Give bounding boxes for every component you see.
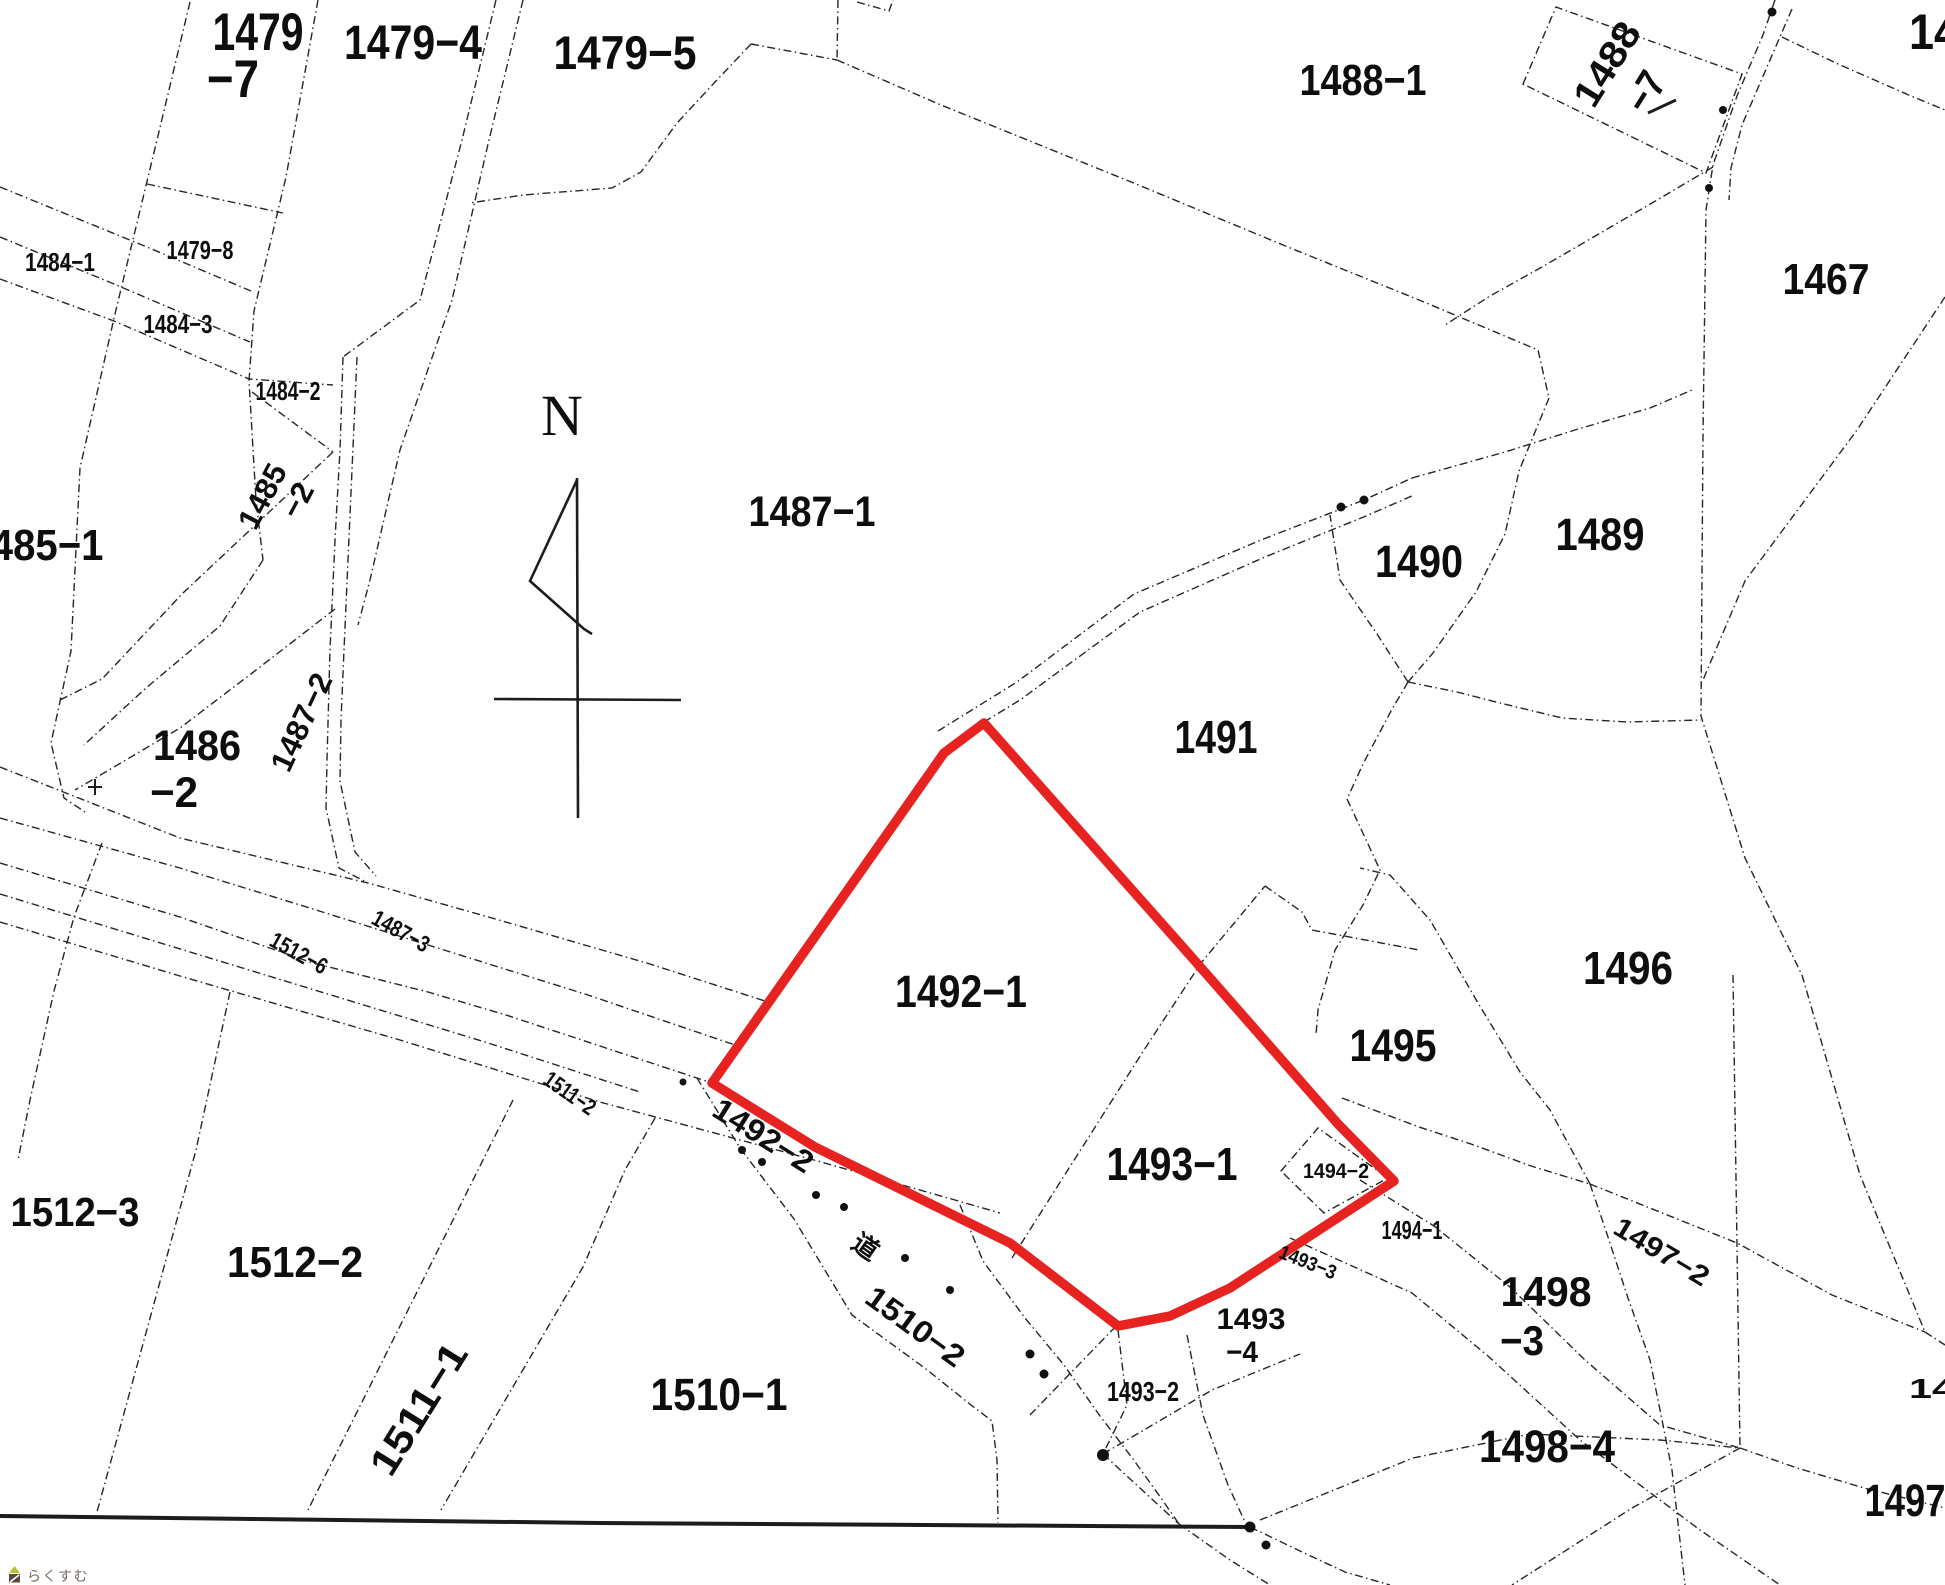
svg-text:1492−1: 1492−1 xyxy=(895,966,1027,1017)
svg-text:14: 14 xyxy=(1909,1373,1945,1404)
svg-text:1488−1: 1488−1 xyxy=(1300,56,1427,105)
svg-text:1498−4: 1498−4 xyxy=(1479,1421,1615,1472)
svg-text:1489: 1489 xyxy=(1556,509,1645,560)
svg-text:1479−5: 1479−5 xyxy=(554,26,697,79)
svg-text:14: 14 xyxy=(1909,4,1945,60)
svg-text:1493−2: 1493−2 xyxy=(1107,1376,1179,1407)
svg-text:1512−3: 1512−3 xyxy=(11,1189,140,1235)
svg-text:1497: 1497 xyxy=(1865,1475,1945,1526)
svg-text:らくすむ: らくすむ xyxy=(27,1568,89,1584)
svg-text:1496: 1496 xyxy=(1583,942,1673,994)
svg-text:1491: 1491 xyxy=(1175,711,1258,763)
svg-text:1485−1: 1485−1 xyxy=(0,521,104,570)
svg-text:−7: −7 xyxy=(207,50,259,109)
svg-text:1467: 1467 xyxy=(1783,255,1870,304)
svg-text:1493−1: 1493−1 xyxy=(1107,1138,1238,1190)
svg-text:1487−1: 1487−1 xyxy=(749,488,876,536)
svg-text:−2: −2 xyxy=(150,769,198,817)
svg-text:1494−2: 1494−2 xyxy=(1303,1160,1369,1183)
svg-text:1498: 1498 xyxy=(1501,1268,1592,1315)
svg-text:−3: −3 xyxy=(1500,1317,1544,1364)
svg-text:1484−3: 1484−3 xyxy=(144,309,213,339)
svg-text:1510−1: 1510−1 xyxy=(651,1369,788,1420)
svg-text:1486: 1486 xyxy=(153,722,241,770)
svg-text:1493: 1493 xyxy=(1217,1303,1286,1336)
svg-text:1479−8: 1479−8 xyxy=(167,235,234,265)
svg-text:1512−2: 1512−2 xyxy=(227,1238,363,1287)
svg-text:−4: −4 xyxy=(1226,1336,1258,1369)
svg-text:1495: 1495 xyxy=(1350,1020,1437,1071)
svg-text:1494−1: 1494−1 xyxy=(1382,1215,1443,1245)
svg-text:N: N xyxy=(541,383,583,448)
svg-text:1484−2: 1484−2 xyxy=(256,376,321,406)
svg-text:1484−1: 1484−1 xyxy=(25,247,95,277)
svg-text:1490: 1490 xyxy=(1375,536,1463,587)
svg-text:1479−4: 1479−4 xyxy=(344,17,482,70)
